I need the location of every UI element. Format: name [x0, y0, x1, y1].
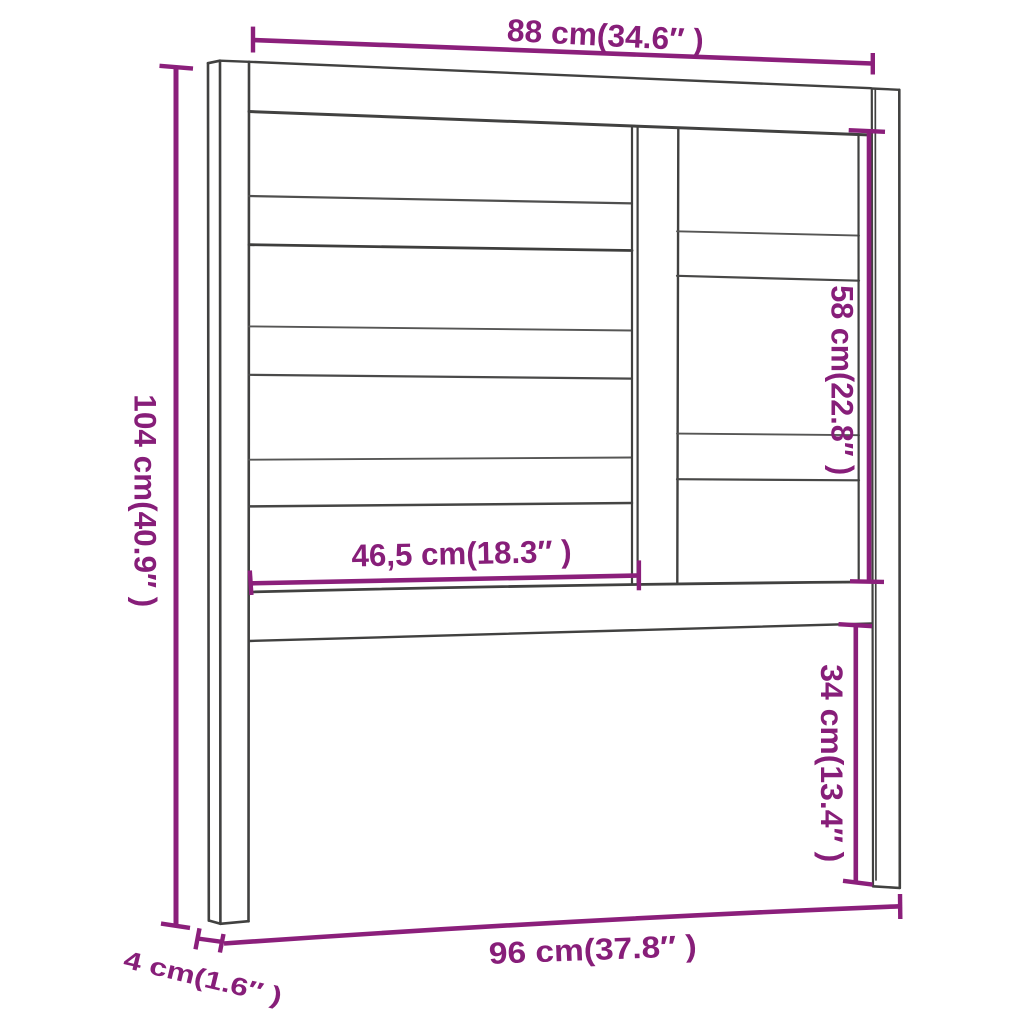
svg-text:58 cm(22.8″ ): 58 cm(22.8″ ): [825, 285, 861, 475]
svg-text:46,5 cm(18.3″ ): 46,5 cm(18.3″ ): [351, 533, 572, 574]
svg-text:104 cm(40.9″ ): 104 cm(40.9″ ): [128, 394, 164, 607]
svg-text:34 cm(13.4″ ): 34 cm(13.4″ ): [814, 664, 850, 862]
